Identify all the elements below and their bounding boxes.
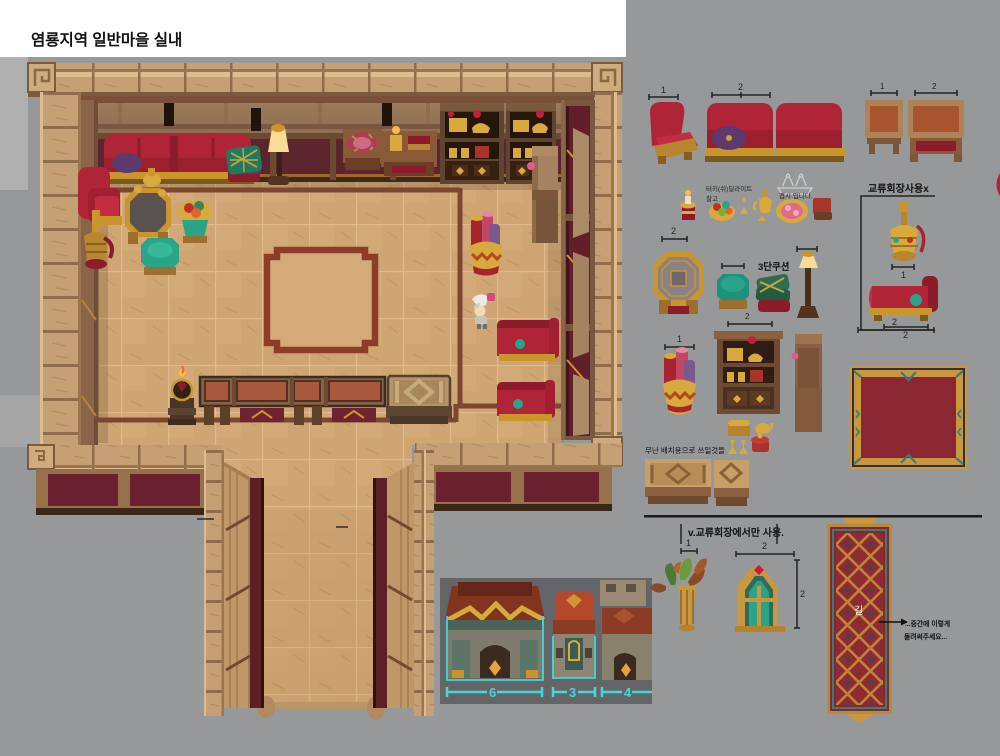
svg-text:겹시 입니다.: 겹시 입니다.: [779, 191, 813, 200]
svg-text:2: 2: [738, 82, 743, 92]
svg-text:2: 2: [762, 541, 767, 551]
svg-text:v.교류회장에서만 사용.: v.교류회장에서만 사용.: [688, 526, 784, 539]
svg-text:길: 길: [854, 604, 863, 617]
svg-text:3: 3: [569, 685, 576, 700]
svg-text:2: 2: [671, 226, 676, 236]
svg-text:1: 1: [677, 334, 682, 344]
svg-text:돌려써주세요...: 돌려써주세요...: [904, 632, 947, 641]
svg-text:3단쿠션: 3단쿠션: [758, 261, 790, 273]
svg-text:6: 6: [489, 685, 496, 700]
svg-text:2: 2: [800, 589, 805, 599]
svg-text:1: 1: [880, 82, 885, 91]
svg-text:2: 2: [932, 82, 937, 91]
svg-text:교류회장사용x: 교류회장사용x: [868, 182, 929, 195]
svg-text:2: 2: [892, 317, 897, 327]
svg-text:염룡지역 일반마을 실내: 염룡지역 일반마을 실내: [31, 31, 182, 49]
svg-text:찰고: 찰고: [706, 194, 718, 203]
svg-text:1: 1: [686, 538, 691, 548]
svg-text:무난 배치용으로 쓰일것들: 무난 배치용으로 쓰일것들: [645, 445, 725, 455]
svg-text:4: 4: [624, 685, 632, 700]
svg-text:2: 2: [745, 312, 750, 321]
svg-text:1: 1: [901, 270, 906, 280]
svg-text:터키(쉬)딜라이트: 터키(쉬)딜라이트: [706, 184, 752, 193]
svg-text:2: 2: [903, 330, 908, 340]
svg-text:1: 1: [661, 85, 666, 95]
svg-text:...중간에 이렇게: ...중간에 이렇게: [905, 619, 950, 628]
